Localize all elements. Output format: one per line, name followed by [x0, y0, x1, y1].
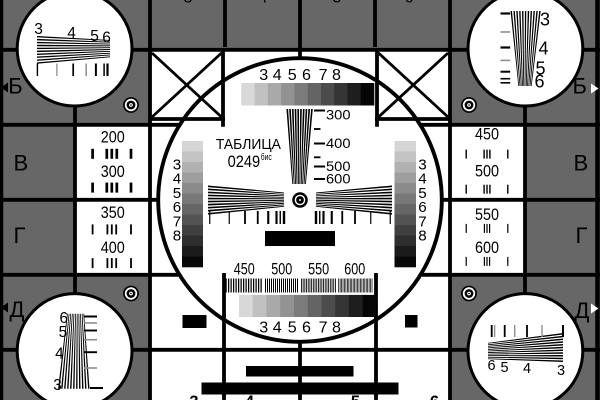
svg-text:550: 550	[308, 261, 329, 279]
svg-text:450: 450	[234, 261, 255, 279]
svg-text:4: 4	[259, 0, 268, 7]
svg-text:Д: Д	[575, 298, 590, 323]
svg-text:300: 300	[326, 108, 351, 123]
svg-text:7: 7	[319, 66, 328, 84]
svg-text:4: 4	[273, 319, 282, 337]
svg-text:600: 600	[326, 172, 351, 187]
svg-text:4: 4	[538, 39, 548, 59]
svg-text:6: 6	[102, 30, 111, 47]
svg-text:4: 4	[55, 346, 64, 363]
svg-text:5: 5	[500, 360, 508, 376]
svg-text:4: 4	[273, 66, 282, 84]
svg-text:6: 6	[302, 66, 311, 84]
svg-text:Б: Б	[573, 74, 587, 99]
svg-text:5: 5	[351, 393, 360, 400]
svg-text:450: 450	[475, 125, 499, 144]
svg-text:8: 8	[332, 319, 341, 337]
svg-text:3: 3	[53, 377, 62, 394]
svg-text:5: 5	[288, 319, 297, 337]
svg-text:350: 350	[101, 203, 125, 222]
svg-text:6: 6	[534, 72, 544, 92]
svg-text:Г: Г	[576, 223, 588, 248]
svg-text:3: 3	[259, 66, 268, 84]
svg-text:В: В	[14, 151, 29, 176]
svg-text:5: 5	[288, 66, 297, 84]
svg-text:5: 5	[90, 28, 99, 45]
svg-text:3: 3	[259, 319, 268, 337]
svg-text:4: 4	[67, 25, 76, 42]
svg-text:В: В	[574, 151, 589, 176]
svg-text:3: 3	[540, 10, 550, 30]
svg-text:300: 300	[101, 162, 125, 181]
svg-text:Б: Б	[8, 74, 22, 99]
svg-text:8: 8	[418, 228, 426, 245]
svg-text:6: 6	[405, 0, 414, 7]
svg-text:Г: Г	[14, 223, 26, 248]
svg-text:0249: 0249	[228, 152, 261, 171]
svg-text:400: 400	[101, 238, 125, 257]
svg-text:6: 6	[302, 319, 311, 337]
svg-text:бис: бис	[261, 152, 272, 163]
svg-text:ТАБЛИЦА: ТАБЛИЦА	[216, 136, 282, 153]
svg-text:6: 6	[487, 358, 495, 374]
svg-text:3: 3	[557, 363, 565, 379]
svg-text:600: 600	[344, 261, 365, 279]
svg-text:3: 3	[184, 0, 193, 7]
svg-text:500: 500	[475, 162, 499, 181]
svg-text:600: 600	[475, 238, 499, 257]
svg-text:8: 8	[332, 66, 341, 84]
svg-text:400: 400	[326, 136, 351, 151]
svg-text:4: 4	[523, 361, 531, 377]
svg-text:6: 6	[430, 393, 439, 400]
svg-text:3: 3	[34, 21, 43, 38]
svg-text:Д: Д	[10, 297, 25, 322]
svg-text:7: 7	[319, 319, 328, 337]
svg-text:5: 5	[333, 0, 342, 7]
svg-text:5: 5	[59, 324, 68, 341]
svg-text:500: 500	[271, 261, 292, 279]
svg-text:3: 3	[189, 393, 198, 400]
svg-text:4: 4	[245, 393, 255, 400]
svg-text:8: 8	[173, 228, 181, 245]
svg-text:200: 200	[101, 128, 125, 147]
svg-text:550: 550	[475, 205, 499, 224]
